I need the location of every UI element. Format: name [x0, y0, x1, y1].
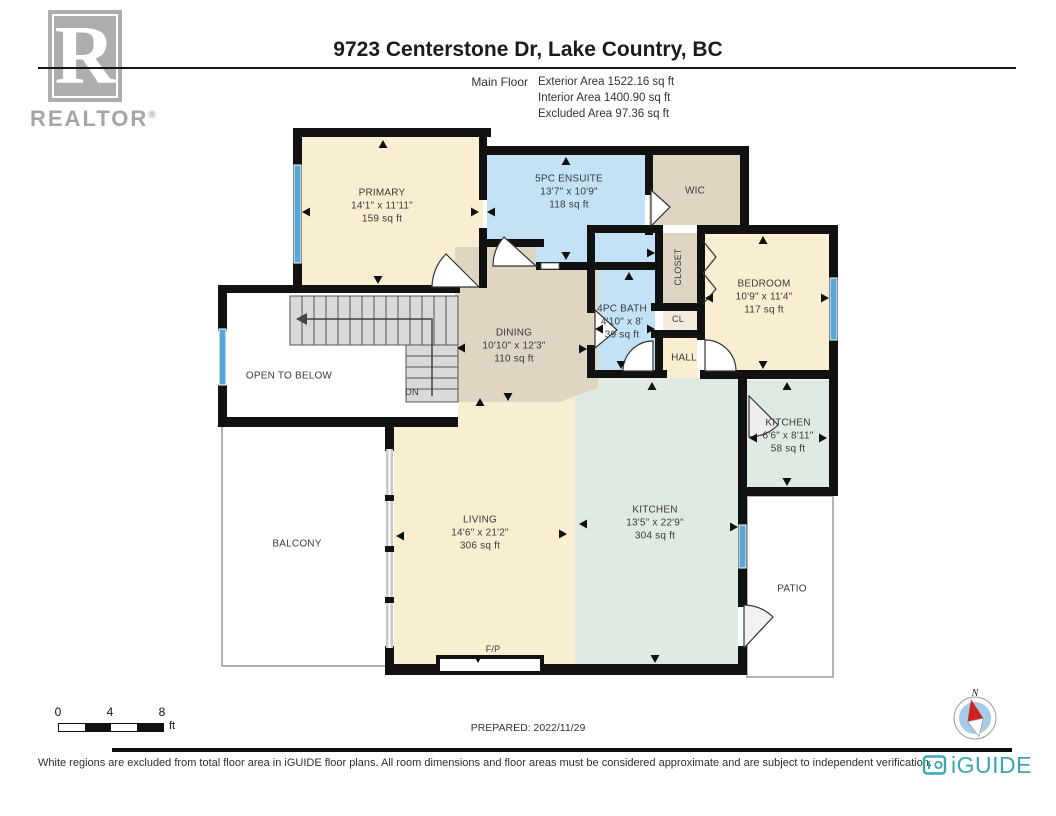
room-label-hall: HALL [671, 352, 697, 365]
room-label-open-to-below: OPEN TO BELOW [246, 370, 332, 383]
room-label-closet: CLOSET [673, 248, 685, 285]
scale-tick-4: 4 [107, 705, 114, 719]
prepared-date: PREPARED: 2022/11/29 [0, 722, 1056, 734]
floorplan-drawing [0, 0, 1056, 816]
footer-disclaimer: White regions are excluded from total fl… [38, 757, 932, 769]
room-label-ensuite: 5PC ENSUITE 13'7" x 10'9" 118 sq ft [535, 173, 603, 212]
room-label-cl: CL [672, 314, 684, 326]
fireplace-label: F/P [486, 644, 501, 656]
footer-divider [112, 748, 1012, 752]
room-label-primary: PRIMARY 14'1" x 11'11" 159 sq ft [351, 187, 413, 226]
scale-tick-0: 0 [55, 705, 62, 719]
scale-tick-8: 8 [159, 705, 166, 719]
window-primary [294, 165, 301, 263]
room-label-bath: 4PC BATH 4'10" x 8' 39 sq ft [597, 303, 647, 342]
room-label-wic: WIC [685, 185, 705, 198]
room-label-living: LIVING 14'6" x 21'2" 306 sq ft [451, 514, 508, 553]
fireplace [438, 657, 542, 673]
door-pocket [541, 263, 559, 269]
door-patio [744, 605, 773, 648]
window-open-below [219, 329, 226, 385]
room-label-bedroom: BEDROOM 10'9" x 11'4" 117 sq ft [736, 278, 793, 317]
room-label-patio: PATIO [777, 583, 807, 596]
floorplan-page: R REALTOR® 9723 Centerstone Dr, Lake Cou… [0, 0, 1056, 816]
iguide-logo: iGUIDE [922, 752, 1032, 779]
window-kitchen [739, 525, 746, 568]
room-label-kitchen-small: KITCHEN 6'6" x 8'11" 58 sq ft [763, 417, 814, 456]
staircase [290, 296, 458, 402]
stairs-dn-label: DN [405, 387, 418, 399]
window-bedroom [830, 278, 837, 340]
sliding-door [385, 449, 394, 648]
room-label-kitchen-main: KITCHEN 13'5" x 22'9" 304 sq ft [626, 504, 683, 543]
iguide-icon [922, 754, 947, 777]
room-label-dining: DINING 10'10" x 12'3" 110 sq ft [482, 327, 545, 366]
room-label-balcony: BALCONY [272, 538, 321, 551]
iguide-wordmark: iGUIDE [951, 752, 1032, 779]
compass-icon [947, 687, 1003, 743]
